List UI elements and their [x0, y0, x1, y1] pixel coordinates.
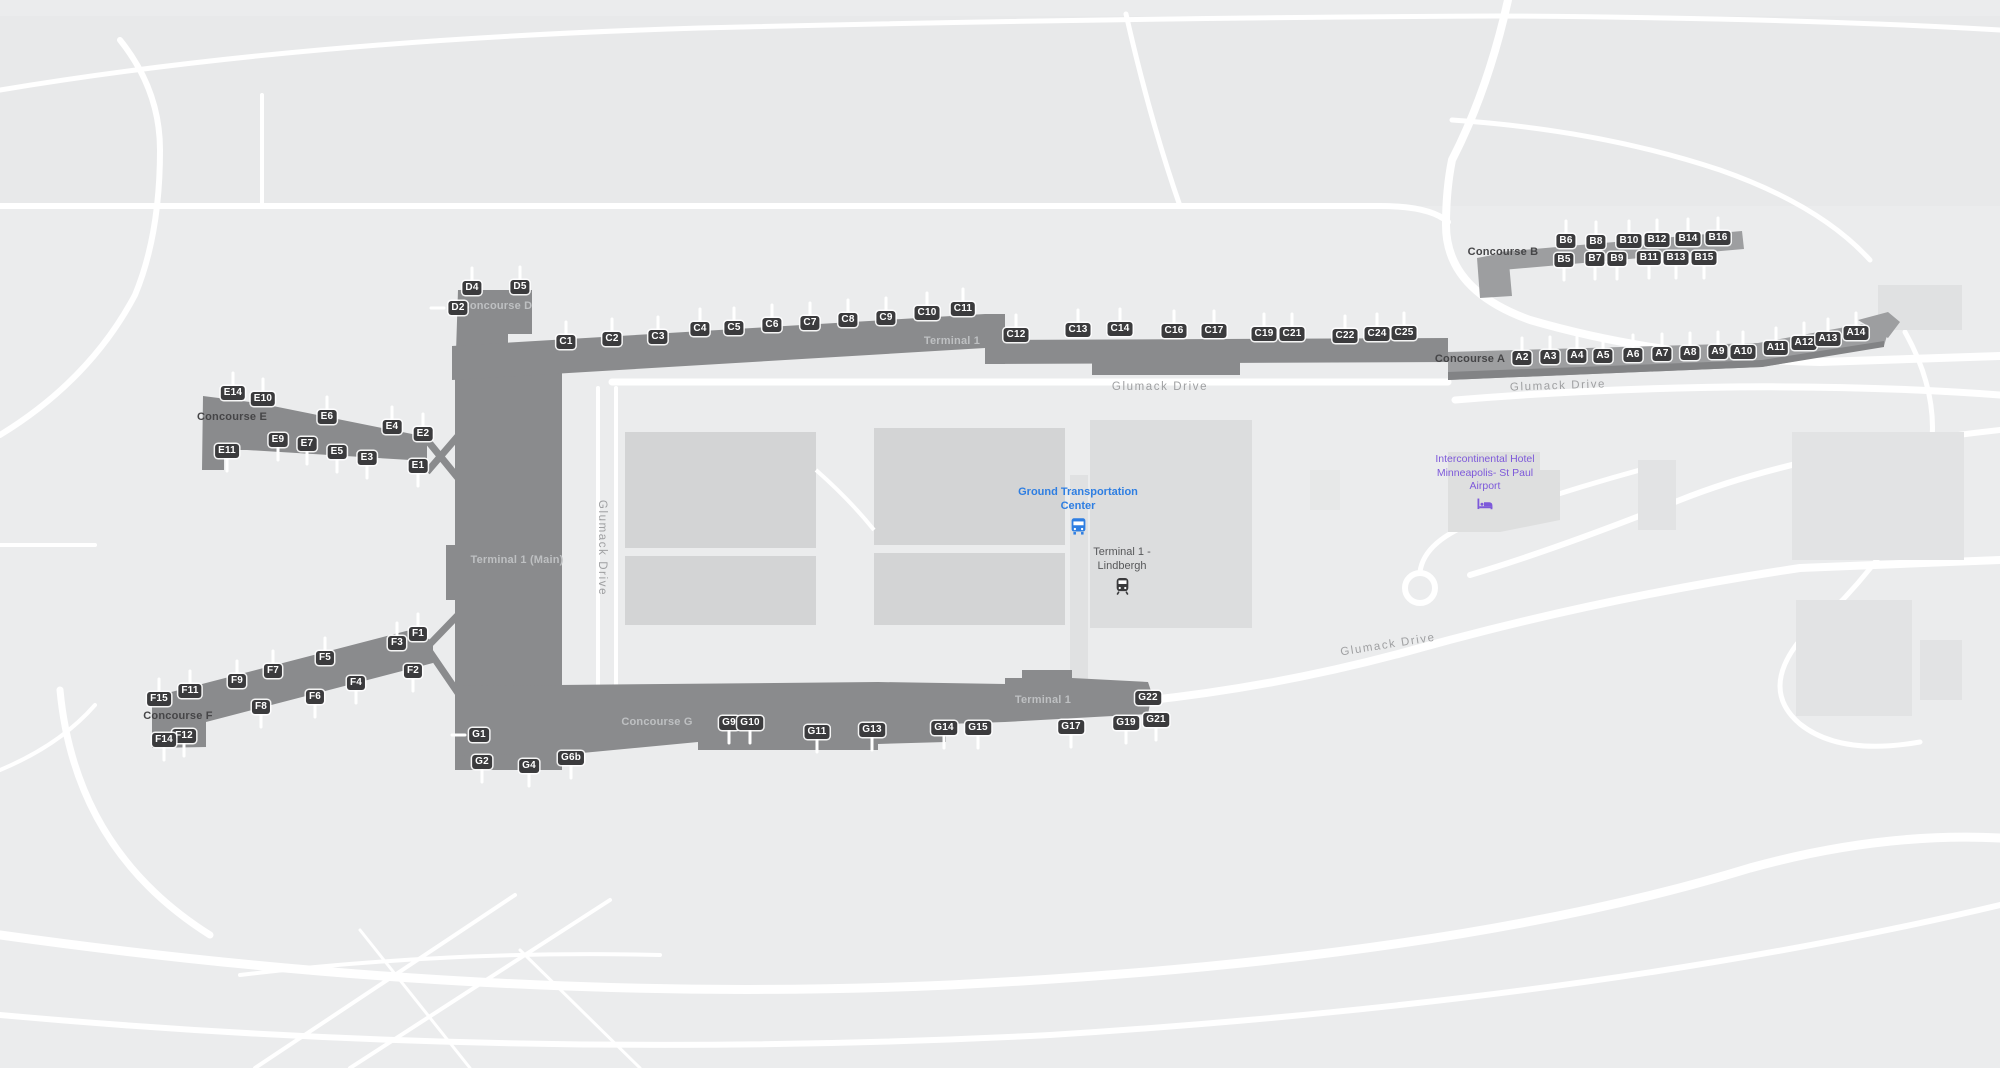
- concourse-f-connector: [430, 615, 458, 693]
- gate-b14-badge: B14: [1676, 232, 1701, 246]
- gate-a13-badge: A13: [1816, 332, 1841, 346]
- gate-g21-badge: G21: [1143, 713, 1169, 727]
- gate-c3-badge: C3: [648, 330, 667, 344]
- gate-b8-badge: B8: [1586, 235, 1605, 249]
- gate-c14-badge: C14: [1108, 322, 1133, 336]
- gate-c8-badge: C8: [838, 313, 857, 327]
- gate-e3-badge: E3: [358, 451, 377, 465]
- gate-a3-badge: A3: [1540, 350, 1559, 364]
- gate-b7-badge: B7: [1585, 252, 1604, 266]
- gate-g2-badge: G2: [472, 755, 492, 769]
- gate-g13-badge: G13: [859, 723, 885, 737]
- gate-b9-badge: B9: [1607, 252, 1626, 266]
- gate-c6-badge: C6: [762, 318, 781, 332]
- gate-d5-badge: D5: [510, 280, 529, 294]
- gate-a7-badge: A7: [1652, 347, 1671, 361]
- gate-a14-badge: A14: [1844, 326, 1869, 340]
- gate-b12-badge: B12: [1645, 233, 1670, 247]
- gate-g17-badge: G17: [1058, 720, 1084, 734]
- terminal-label-2: Terminal 1: [1015, 694, 1071, 706]
- concourse-e-label: Concourse E: [197, 411, 267, 423]
- gate-c4-badge: C4: [690, 322, 709, 336]
- gate-c7-badge: C7: [800, 316, 819, 330]
- gate-g11-badge: G11: [805, 725, 830, 739]
- gate-b10-badge: B10: [1617, 234, 1642, 248]
- gate-a8-badge: A8: [1680, 346, 1699, 360]
- gate-b16-badge: B16: [1706, 231, 1731, 245]
- gate-f2-badge: F2: [404, 664, 422, 678]
- concourse-g-label: Concourse G: [621, 716, 692, 728]
- terminal-1-lindbergh-label: Terminal 1 - Lindbergh: [1080, 545, 1164, 574]
- gate-e10-badge: E10: [251, 392, 275, 406]
- intercontinental-hotel[interactable]: Intercontinental Hotel Minneapolis- St P…: [1427, 453, 1543, 511]
- gate-c13-badge: C13: [1066, 323, 1091, 337]
- gate-b15-badge: B15: [1692, 251, 1717, 265]
- gate-g15-badge: G15: [965, 721, 991, 735]
- gate-g19-badge: G19: [1113, 716, 1139, 730]
- gate-a9-badge: A9: [1708, 345, 1727, 359]
- gate-c21-badge: C21: [1280, 327, 1305, 341]
- concourse-e-connector: [427, 436, 458, 478]
- gate-c24-badge: C24: [1365, 327, 1390, 341]
- gate-e9-badge: E9: [269, 433, 288, 447]
- terminal-label-0: Terminal 1: [924, 335, 980, 347]
- gate-g6b-badge: G6b: [558, 751, 584, 765]
- gate-e1-badge: E1: [409, 459, 428, 473]
- map-base-layer: [0, 0, 2000, 1068]
- bus-icon: [1070, 517, 1087, 535]
- gate-c5-badge: C5: [724, 321, 743, 335]
- gate-g22-badge: G22: [1135, 691, 1161, 705]
- concourse-f-label: Concourse F: [143, 710, 212, 722]
- gate-a6-badge: A6: [1623, 348, 1642, 362]
- gate-f5-badge: F5: [316, 651, 334, 665]
- gate-f3-badge: F3: [388, 636, 406, 650]
- gate-a5-badge: A5: [1593, 349, 1612, 363]
- ground-transportation-center[interactable]: Ground Transportation Center: [1012, 485, 1144, 535]
- gate-g1-badge: G1: [469, 728, 489, 742]
- gate-e2-badge: E2: [414, 427, 433, 441]
- terminal-label-1: Terminal 1 (Main): [470, 554, 563, 566]
- gate-e11-badge: E11: [215, 444, 239, 458]
- gate-c12-badge: C12: [1004, 328, 1029, 342]
- gate-e6-badge: E6: [318, 410, 337, 424]
- gate-e14-badge: E14: [221, 386, 245, 400]
- gate-b11-badge: B11: [1637, 251, 1661, 265]
- gate-d2-badge: D2: [448, 301, 467, 315]
- concourse-d-label: Concourse D: [462, 300, 533, 312]
- gate-a2-badge: A2: [1512, 351, 1531, 365]
- gate-c1-badge: C1: [556, 335, 575, 349]
- glumack-drive-label-0: Glumack Drive: [1112, 381, 1208, 393]
- gate-b13-badge: B13: [1664, 251, 1689, 265]
- gate-c2-badge: C2: [602, 332, 621, 346]
- gate-c11-badge: C11: [951, 302, 975, 316]
- gate-a10-badge: A10: [1731, 345, 1756, 359]
- shading-band: [0, 16, 2000, 206]
- roundabout: [1405, 573, 1435, 603]
- gate-c16-badge: C16: [1162, 324, 1187, 338]
- gate-g14-badge: G14: [931, 721, 957, 735]
- train-icon: [1114, 577, 1131, 595]
- gate-c25-badge: C25: [1392, 326, 1417, 340]
- gate-e5-badge: E5: [328, 445, 347, 459]
- gate-f4-badge: F4: [347, 676, 365, 690]
- gate-a4-badge: A4: [1567, 349, 1586, 363]
- gate-a11-badge: A11: [1764, 341, 1788, 355]
- gate-g9-badge: G9: [719, 716, 739, 730]
- gate-f9-badge: F9: [228, 674, 246, 688]
- gate-e7-badge: E7: [298, 437, 317, 451]
- gate-d4-badge: D4: [462, 281, 481, 295]
- gate-f15-badge: F15: [147, 692, 171, 706]
- gate-c22-badge: C22: [1333, 329, 1358, 343]
- airport-terminal-map[interactable]: Ground Transportation Center Terminal 1 …: [0, 0, 2000, 1068]
- gate-a12-badge: A12: [1792, 336, 1817, 350]
- gate-g10-badge: G10: [737, 716, 763, 730]
- gate-f6-badge: F6: [306, 690, 324, 704]
- concourse-a-label: Concourse A: [1435, 353, 1505, 365]
- gate-f8-badge: F8: [252, 700, 270, 714]
- glumack-drive-label-2: Glumack Drive: [596, 500, 608, 596]
- gate-c19-badge: C19: [1252, 327, 1277, 341]
- gate-c9-badge: C9: [876, 311, 895, 325]
- gate-c10-badge: C10: [915, 306, 940, 320]
- gate-f7-badge: F7: [264, 664, 282, 678]
- gate-f1-badge: F1: [409, 627, 427, 641]
- gate-c17-badge: C17: [1202, 324, 1227, 338]
- terminal-1-lindbergh-station[interactable]: Terminal 1 - Lindbergh: [1080, 545, 1164, 595]
- gate-f11-badge: F11: [178, 684, 201, 698]
- gate-b6-badge: B6: [1556, 234, 1575, 248]
- gate-g4-badge: G4: [519, 759, 539, 773]
- intercontinental-hotel-label: Intercontinental Hotel Minneapolis- St P…: [1427, 453, 1543, 494]
- gate-f14-badge: F14: [152, 733, 176, 747]
- hotel-bed-icon: [1476, 497, 1494, 511]
- gate-b5-badge: B5: [1554, 253, 1573, 267]
- concourse-b-label: Concourse B: [1468, 246, 1539, 258]
- ground-transportation-center-label: Ground Transportation Center: [1012, 485, 1144, 514]
- gate-e4-badge: E4: [383, 420, 402, 434]
